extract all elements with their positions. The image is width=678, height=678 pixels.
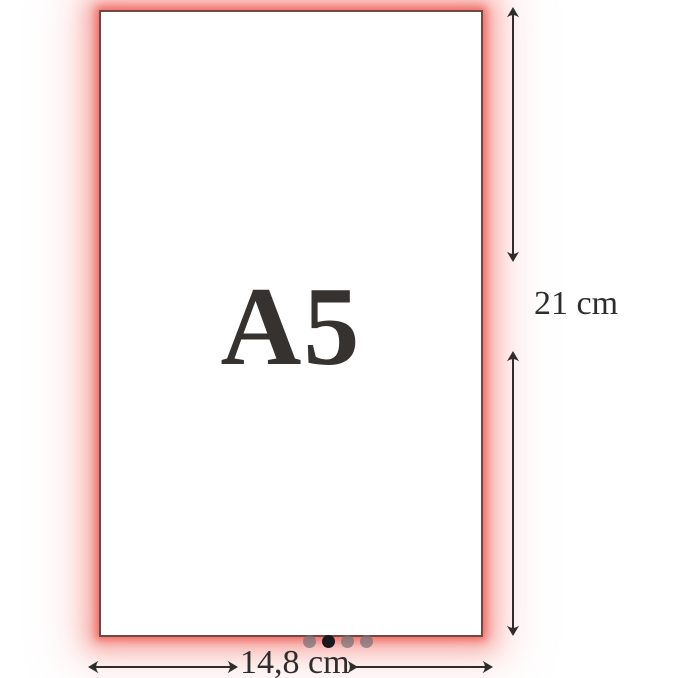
- carousel-dots: [303, 635, 373, 648]
- arrow-down-icon: [507, 252, 519, 263]
- carousel-dot[interactable]: [303, 635, 316, 648]
- width-dimension-label: 14,8 cm: [240, 645, 350, 678]
- arrow-down-icon: [507, 626, 519, 637]
- product-image: A5: [0, 0, 678, 678]
- arrow-up-icon: [507, 7, 519, 18]
- carousel-dot[interactable]: [341, 635, 354, 648]
- arrow-right-icon: [483, 661, 494, 673]
- arrow-left-icon: [88, 661, 99, 673]
- paper-size-label: A5: [221, 271, 362, 383]
- height-dimension-label: 21 cm: [534, 286, 618, 322]
- arrow-right-icon: [228, 661, 239, 673]
- carousel-dot-active[interactable]: [322, 635, 335, 648]
- arrow-up-icon: [507, 351, 519, 362]
- height-dimension-arrow: [507, 7, 519, 636]
- a5-paper-diagram: A5: [99, 10, 483, 637]
- carousel-dot[interactable]: [360, 635, 373, 648]
